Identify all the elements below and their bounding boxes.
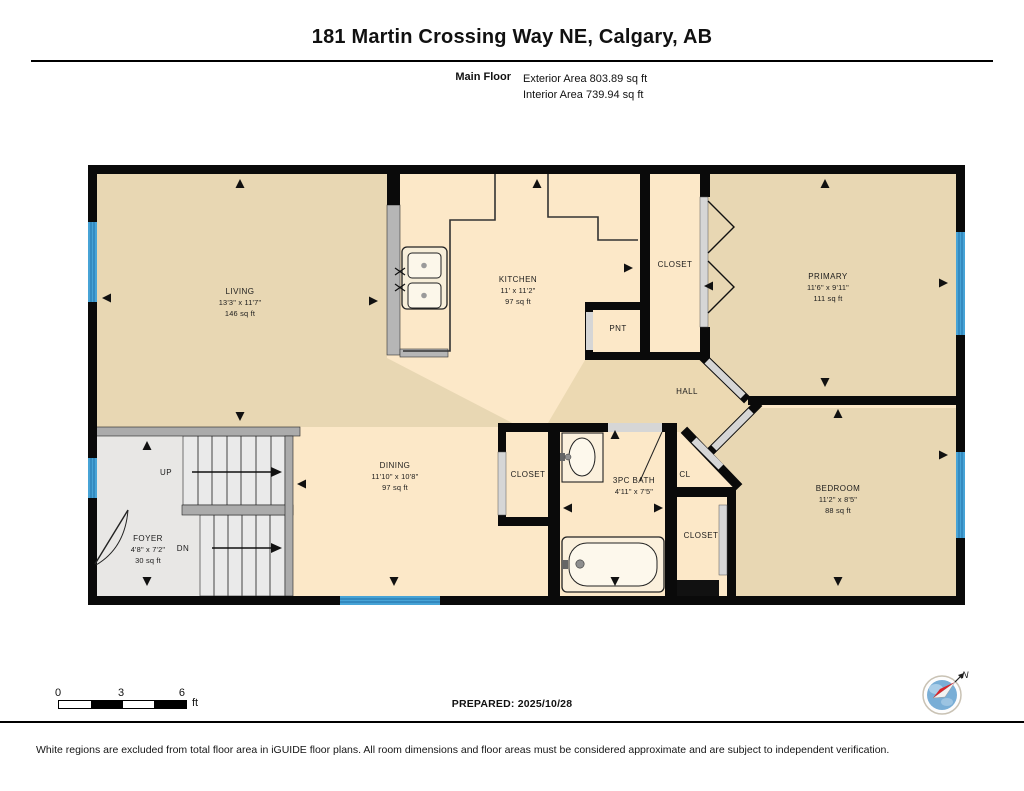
bedroom-label: BEDROOM xyxy=(816,484,861,493)
hall-label: HALL xyxy=(676,387,698,396)
foyer-dims: 4'8" x 7'2" xyxy=(131,545,166,554)
living-area: 146 sq ft xyxy=(225,309,255,318)
compass-icon: N xyxy=(916,668,974,722)
prepared-date: PREPARED: 2025/10/28 xyxy=(0,698,1024,710)
stairs-up-label: UP xyxy=(160,468,172,477)
cl-label: CL xyxy=(679,470,690,479)
kitchen-sink-icon xyxy=(395,247,447,309)
floor-areas: Exterior Area 803.89 sq ft Interior Area… xyxy=(523,71,647,103)
kitchen-label: KITCHEN xyxy=(499,275,537,284)
disclaimer-text: White regions are excluded from total fl… xyxy=(36,744,986,756)
window-icon xyxy=(340,596,440,605)
closet-shelf xyxy=(677,580,719,596)
footer-divider xyxy=(0,721,1024,723)
kitchen-dims: 11' x 11'2" xyxy=(501,286,536,295)
primary-dims: 11'6" x 9'11" xyxy=(807,283,849,292)
page-title: 181 Martin Crossing Way NE, Calgary, AB xyxy=(0,26,1024,49)
bedroom-dims: 11'2" x 8'5" xyxy=(819,495,857,504)
compass-north-label: N xyxy=(962,670,969,680)
bedroom-area: 88 sq ft xyxy=(825,506,851,515)
bathroom-vanity-icon xyxy=(560,433,603,482)
bathtub-icon xyxy=(562,537,664,592)
window-icon xyxy=(956,452,965,538)
closet-mid-label: CLOSET xyxy=(511,470,546,479)
living-label: LIVING xyxy=(226,287,255,296)
primary-label: PRIMARY xyxy=(808,272,848,281)
dining-label: DINING xyxy=(380,461,411,470)
floor-plan-drawing: LIVING 13'3" x 11'7" 146 sq ft KITCHEN 1… xyxy=(88,165,965,605)
window-icon xyxy=(88,458,97,498)
header-divider xyxy=(31,60,993,62)
interior-area: Interior Area 739.94 sq ft xyxy=(523,87,647,103)
foyer-area: 30 sq ft xyxy=(135,556,161,565)
window-icon xyxy=(956,232,965,335)
pantry-label: PNT xyxy=(609,324,626,333)
foyer-label: FOYER xyxy=(133,534,163,543)
bath-label: 3PC BATH xyxy=(613,476,655,485)
exterior-area: Exterior Area 803.89 sq ft xyxy=(523,71,647,87)
dining-dims: 11'10" x 10'8" xyxy=(372,472,419,481)
closet-bedroom-label: CLOSET xyxy=(684,531,719,540)
bath-dims: 4'11" x 7'5" xyxy=(615,487,653,496)
stairs-dn-label: DN xyxy=(177,544,189,553)
closet-top-label: CLOSET xyxy=(658,260,693,269)
dining-area: 97 sq ft xyxy=(382,483,408,492)
floor-plan-page: 181 Martin Crossing Way NE, Calgary, AB … xyxy=(0,0,1024,791)
living-dims: 13'3" x 11'7" xyxy=(219,298,262,307)
primary-area: 111 sq ft xyxy=(813,294,842,303)
kitchen-area: 97 sq ft xyxy=(505,297,531,306)
window-icon xyxy=(88,222,97,302)
floor-name: Main Floor xyxy=(455,71,511,83)
